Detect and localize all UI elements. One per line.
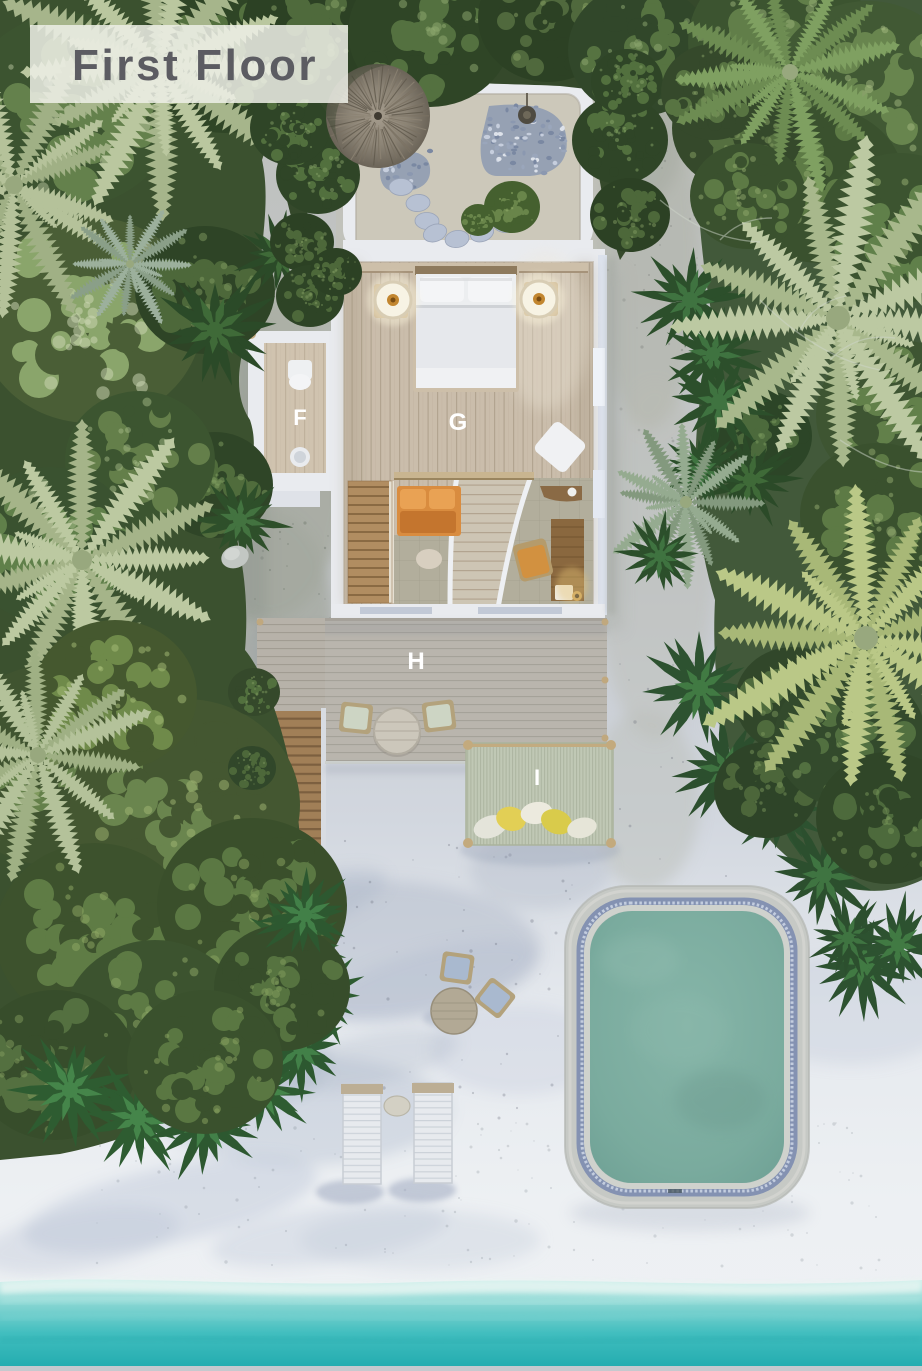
svg-text:I: I bbox=[534, 765, 540, 790]
svg-text:G: G bbox=[449, 409, 468, 436]
svg-text:F: F bbox=[293, 405, 306, 430]
svg-text:H: H bbox=[407, 648, 424, 675]
svg-text:First Floor: First Floor bbox=[72, 41, 318, 90]
